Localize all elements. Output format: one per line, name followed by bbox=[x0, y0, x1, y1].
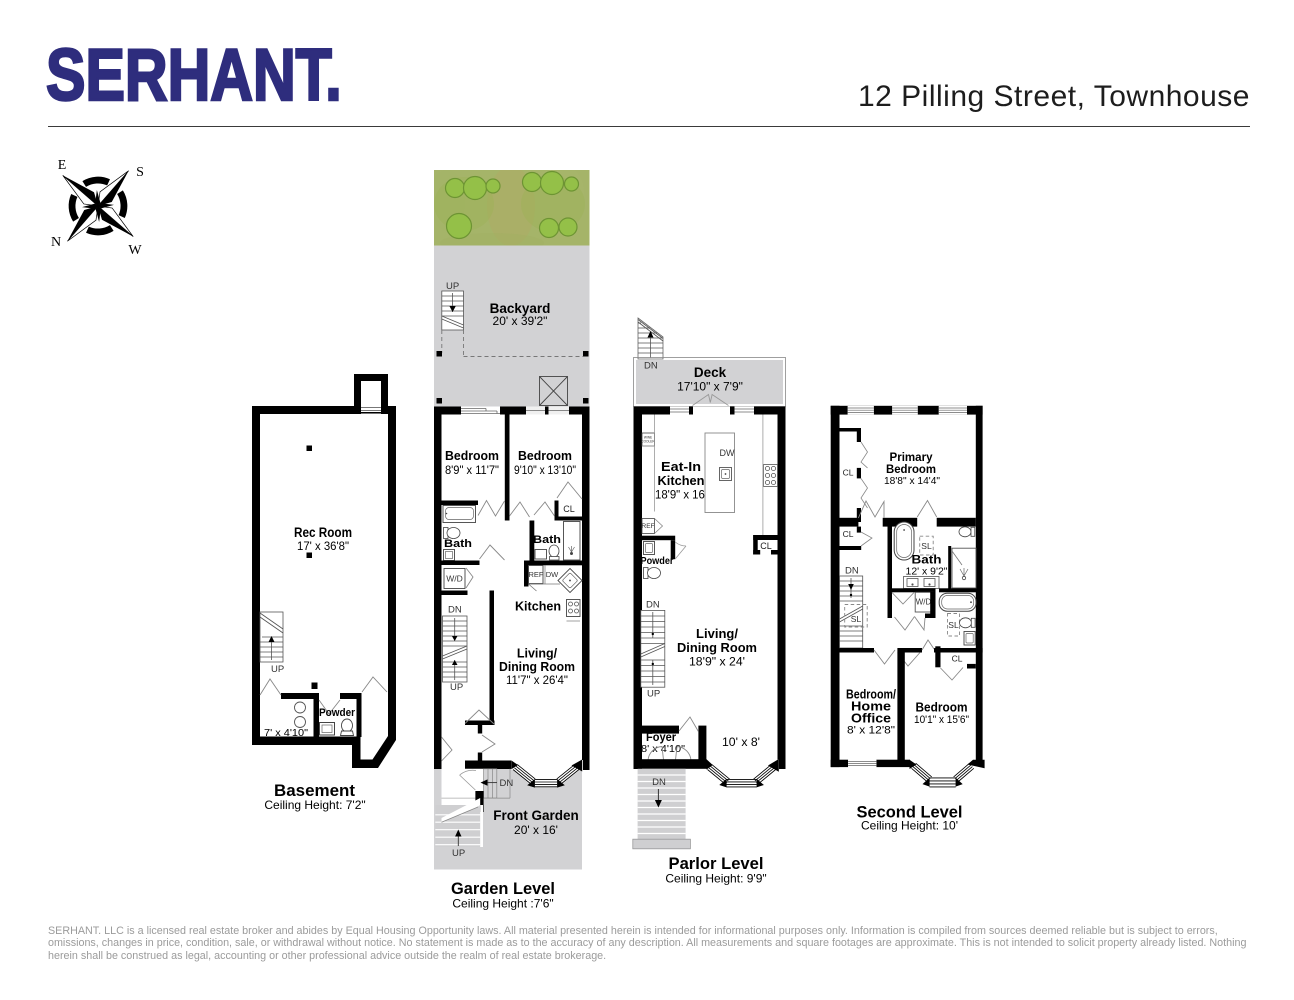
svg-text:Deck: Deck bbox=[694, 365, 727, 380]
svg-text:DN: DN bbox=[646, 600, 660, 611]
svg-text:Parlor Level: Parlor Level bbox=[669, 854, 764, 873]
svg-text:CL: CL bbox=[952, 654, 963, 664]
svg-text:REF: REF bbox=[529, 570, 544, 579]
svg-text:7' x 4'10": 7' x 4'10" bbox=[264, 728, 308, 739]
svg-text:Eat-In: Eat-In bbox=[661, 459, 701, 474]
svg-text:UP: UP bbox=[446, 281, 459, 292]
svg-text:DN: DN bbox=[448, 605, 462, 616]
svg-text:W: W bbox=[128, 243, 142, 258]
svg-text:20' x 39'2": 20' x 39'2" bbox=[493, 314, 548, 328]
svg-text:CL: CL bbox=[760, 541, 772, 551]
svg-text:Living/: Living/ bbox=[696, 626, 738, 641]
svg-text:N: N bbox=[51, 235, 61, 250]
svg-text:Bedroom: Bedroom bbox=[518, 449, 572, 463]
svg-text:11'7" x 26'4": 11'7" x 26'4" bbox=[506, 675, 568, 687]
svg-text:Bedroom: Bedroom bbox=[916, 701, 968, 715]
svg-text:CL: CL bbox=[843, 468, 854, 478]
svg-text:DN: DN bbox=[845, 566, 859, 577]
svg-text:SL: SL bbox=[851, 614, 862, 624]
svg-text:10'1" x 15'6": 10'1" x 15'6" bbox=[914, 714, 969, 726]
svg-text:UP: UP bbox=[452, 848, 465, 859]
svg-text:Ceiling Height: 9'9": Ceiling Height: 9'9" bbox=[665, 872, 766, 886]
svg-text:Living/: Living/ bbox=[517, 647, 558, 661]
svg-text:8' x 12'8": 8' x 12'8" bbox=[847, 725, 895, 737]
svg-text:Kitchen: Kitchen bbox=[515, 600, 561, 614]
svg-text:Powder: Powder bbox=[319, 707, 356, 719]
svg-text:18'9" x 16': 18'9" x 16' bbox=[655, 490, 707, 502]
svg-text:COOLER: COOLER bbox=[641, 440, 655, 444]
svg-text:CL: CL bbox=[563, 504, 575, 514]
svg-text:Garden Level: Garden Level bbox=[451, 879, 555, 898]
svg-text:20' x 16': 20' x 16' bbox=[514, 823, 558, 837]
svg-text:E: E bbox=[58, 158, 67, 173]
svg-text:Ceiling Height :7'6": Ceiling Height :7'6" bbox=[452, 897, 553, 911]
svg-text:SL: SL bbox=[948, 620, 959, 630]
svg-text:Powder: Powder bbox=[641, 555, 674, 567]
svg-text:Bath: Bath bbox=[533, 534, 561, 546]
svg-text:DN: DN bbox=[652, 777, 666, 788]
svg-text:CL: CL bbox=[843, 529, 854, 539]
svg-text:DN: DN bbox=[500, 778, 514, 789]
svg-text:Bath: Bath bbox=[444, 538, 472, 550]
svg-text:Rec Room: Rec Room bbox=[294, 525, 352, 540]
svg-text:DN: DN bbox=[644, 361, 658, 372]
svg-text:Bedroom: Bedroom bbox=[445, 449, 499, 463]
svg-text:17'10" x 7'9": 17'10" x 7'9" bbox=[677, 380, 743, 394]
svg-text:Dining Room: Dining Room bbox=[499, 660, 575, 674]
svg-text:Front Garden: Front Garden bbox=[493, 808, 579, 823]
svg-text:Bath: Bath bbox=[912, 553, 942, 567]
svg-text:18'9" x 24': 18'9" x 24' bbox=[689, 657, 745, 669]
svg-text:UP: UP bbox=[450, 682, 463, 693]
svg-text:Kitchen: Kitchen bbox=[658, 473, 705, 488]
svg-text:SL: SL bbox=[921, 541, 932, 551]
svg-text:Office: Office bbox=[851, 712, 891, 726]
svg-text:10' x 8': 10' x 8' bbox=[722, 737, 760, 749]
svg-text:12' x 9'2": 12' x 9'2" bbox=[906, 566, 948, 578]
svg-text:18'8" x 14'4": 18'8" x 14'4" bbox=[884, 475, 940, 487]
svg-text:Dining Room: Dining Room bbox=[677, 640, 757, 655]
svg-text:8'9" x 11'7": 8'9" x 11'7" bbox=[445, 465, 499, 477]
svg-text:UP: UP bbox=[271, 664, 284, 675]
svg-text:Bedroom: Bedroom bbox=[886, 462, 936, 476]
svg-text:Ceiling Height: 10': Ceiling Height: 10' bbox=[861, 819, 958, 833]
svg-text:W/D: W/D bbox=[916, 598, 932, 607]
svg-text:DW: DW bbox=[720, 448, 735, 458]
svg-text:Ceiling Height: 7'2": Ceiling Height: 7'2" bbox=[264, 798, 365, 812]
svg-text:DW: DW bbox=[546, 570, 559, 579]
svg-text:17' x 36'8": 17' x 36'8" bbox=[297, 541, 349, 553]
svg-text:UP: UP bbox=[647, 689, 660, 700]
svg-text:W/D: W/D bbox=[446, 574, 463, 584]
svg-text:S: S bbox=[136, 165, 144, 180]
svg-text:9'10" x 13'10": 9'10" x 13'10" bbox=[514, 465, 576, 477]
svg-text:REF: REF bbox=[642, 523, 655, 530]
